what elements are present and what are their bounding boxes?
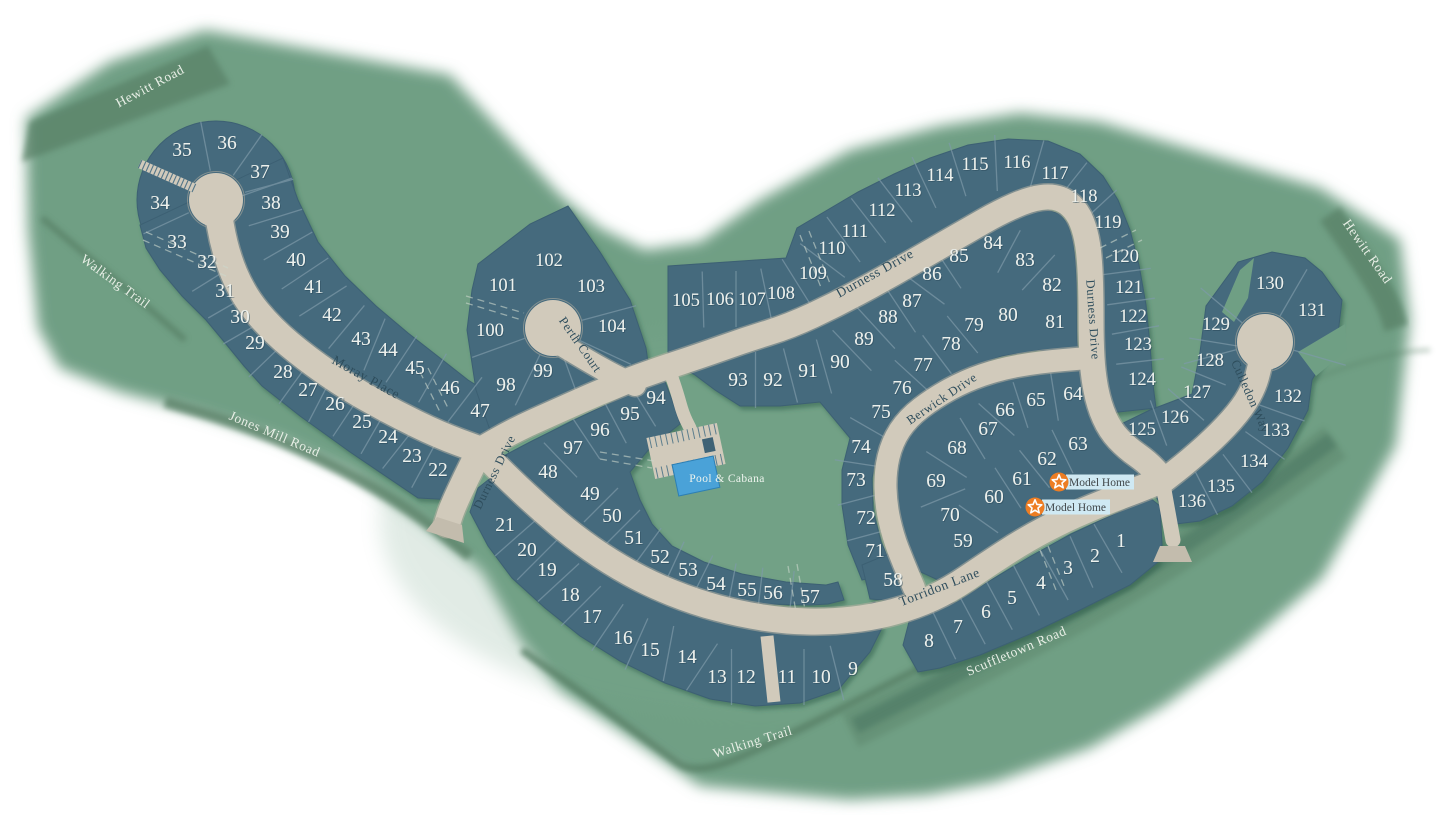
svg-text:83: 83 [1015,250,1035,271]
svg-text:22: 22 [428,460,448,481]
svg-text:127: 127 [1183,383,1211,403]
svg-text:107: 107 [738,290,766,310]
svg-text:21: 21 [495,515,515,536]
svg-text:95: 95 [620,404,640,425]
svg-text:131: 131 [1298,301,1326,321]
svg-text:134: 134 [1240,452,1268,472]
svg-text:58: 58 [883,570,903,591]
svg-text:32: 32 [197,252,217,273]
svg-text:7: 7 [953,617,963,638]
svg-text:66: 66 [995,400,1015,421]
svg-text:89: 89 [854,329,874,350]
svg-text:79: 79 [964,315,984,336]
svg-text:18: 18 [560,585,580,606]
svg-text:14: 14 [677,647,697,668]
svg-text:68: 68 [947,438,967,459]
svg-text:33: 33 [167,232,187,253]
svg-text:85: 85 [949,246,969,267]
svg-text:92: 92 [763,370,783,391]
svg-text:70: 70 [940,505,960,526]
svg-text:6: 6 [981,602,991,623]
svg-text:88: 88 [878,307,898,328]
svg-text:126: 126 [1161,408,1189,428]
svg-text:65: 65 [1026,390,1046,411]
svg-text:44: 44 [378,340,398,361]
svg-text:52: 52 [650,547,670,568]
svg-text:78: 78 [941,334,961,355]
svg-text:40: 40 [286,250,306,271]
svg-text:5: 5 [1007,588,1017,609]
svg-text:43: 43 [351,329,371,350]
svg-text:81: 81 [1045,312,1065,333]
svg-text:11: 11 [778,667,797,688]
svg-text:132: 132 [1274,387,1302,407]
svg-text:9: 9 [848,659,858,680]
svg-text:87: 87 [902,291,922,312]
svg-text:130: 130 [1256,274,1284,294]
svg-text:35: 35 [172,140,192,161]
svg-text:1: 1 [1116,531,1126,552]
svg-text:16: 16 [613,628,633,649]
svg-text:31: 31 [215,281,235,302]
svg-text:93: 93 [728,370,748,391]
svg-text:136: 136 [1178,492,1206,512]
svg-text:103: 103 [577,277,605,297]
svg-text:94: 94 [646,388,666,409]
svg-text:118: 118 [1070,187,1097,207]
svg-text:12: 12 [736,667,756,688]
svg-text:26: 26 [325,394,345,415]
svg-text:41: 41 [304,277,324,298]
svg-text:46: 46 [440,378,460,399]
svg-text:86: 86 [922,264,942,285]
svg-text:96: 96 [590,420,610,441]
svg-text:47: 47 [470,401,490,422]
svg-text:55: 55 [737,580,757,601]
svg-text:133: 133 [1262,421,1290,441]
svg-text:51: 51 [624,528,644,549]
svg-text:28: 28 [273,362,293,383]
svg-text:109: 109 [799,264,827,284]
svg-text:53: 53 [678,560,698,581]
svg-text:99: 99 [533,361,553,382]
svg-text:30: 30 [230,307,250,328]
svg-text:13: 13 [707,667,727,688]
svg-text:115: 115 [961,155,988,175]
svg-text:102: 102 [535,251,563,271]
svg-text:59: 59 [953,531,973,552]
svg-text:17: 17 [582,607,602,628]
svg-text:69: 69 [926,471,946,492]
svg-text:64: 64 [1063,384,1083,405]
svg-text:61: 61 [1012,469,1032,490]
svg-text:113: 113 [894,181,921,201]
svg-text:39: 39 [270,222,290,243]
svg-text:Model Home: Model Home [1045,502,1106,514]
svg-text:82: 82 [1042,275,1062,296]
svg-text:Model Home: Model Home [1069,477,1130,489]
svg-text:50: 50 [602,506,622,527]
svg-text:36: 36 [217,133,237,154]
svg-text:2: 2 [1090,546,1100,567]
svg-text:48: 48 [538,462,558,483]
svg-text:125: 125 [1128,420,1156,440]
svg-text:19: 19 [537,560,557,581]
svg-text:129: 129 [1202,315,1230,335]
svg-text:23: 23 [402,446,422,467]
svg-text:90: 90 [830,352,850,373]
svg-text:104: 104 [598,317,626,337]
svg-text:128: 128 [1196,351,1224,371]
svg-text:75: 75 [871,402,891,423]
svg-text:101: 101 [489,276,517,296]
svg-text:62: 62 [1037,449,1057,470]
svg-text:76: 76 [892,378,912,399]
svg-text:4: 4 [1036,573,1046,594]
svg-text:120: 120 [1111,247,1139,267]
svg-text:108: 108 [767,284,795,304]
svg-text:20: 20 [517,540,537,561]
svg-text:110: 110 [818,239,845,259]
svg-text:29: 29 [245,333,265,354]
svg-text:15: 15 [640,640,660,661]
svg-text:121: 121 [1115,278,1143,298]
svg-text:84: 84 [983,233,1003,254]
svg-text:71: 71 [865,541,885,562]
svg-text:122: 122 [1119,307,1147,327]
svg-text:98: 98 [496,375,516,396]
svg-text:38: 38 [261,193,281,214]
svg-text:135: 135 [1207,477,1235,497]
svg-text:37: 37 [250,162,270,183]
svg-text:42: 42 [322,305,342,326]
svg-text:27: 27 [298,380,318,401]
svg-text:77: 77 [913,355,933,376]
svg-text:116: 116 [1003,153,1030,173]
svg-text:105: 105 [672,291,700,311]
svg-text:123: 123 [1124,335,1152,355]
svg-text:63: 63 [1068,434,1088,455]
svg-text:49: 49 [580,484,600,505]
svg-text:3: 3 [1063,558,1073,579]
svg-text:45: 45 [405,358,425,379]
svg-text:73: 73 [846,470,866,491]
svg-text:24: 24 [378,427,398,448]
svg-text:34: 34 [150,193,170,214]
svg-text:60: 60 [984,487,1004,508]
svg-text:106: 106 [706,290,734,310]
svg-text:72: 72 [856,508,876,529]
svg-text:111: 111 [842,222,868,242]
svg-text:57: 57 [800,587,820,608]
svg-text:114: 114 [926,166,953,186]
svg-text:112: 112 [868,201,895,221]
svg-text:8: 8 [924,631,934,652]
svg-text:124: 124 [1128,370,1156,390]
svg-text:25: 25 [352,412,372,433]
svg-text:10: 10 [811,667,831,688]
svg-text:117: 117 [1041,164,1068,184]
svg-text:74: 74 [851,437,871,458]
svg-text:100: 100 [476,321,504,341]
svg-text:80: 80 [998,305,1018,326]
svg-text:97: 97 [563,438,583,459]
svg-text:56: 56 [763,583,783,604]
svg-text:91: 91 [798,361,818,382]
svg-text:54: 54 [706,574,726,595]
svg-text:119: 119 [1094,213,1121,233]
svg-text:67: 67 [978,419,998,440]
svg-text:Pool & Cabana: Pool & Cabana [689,473,764,485]
